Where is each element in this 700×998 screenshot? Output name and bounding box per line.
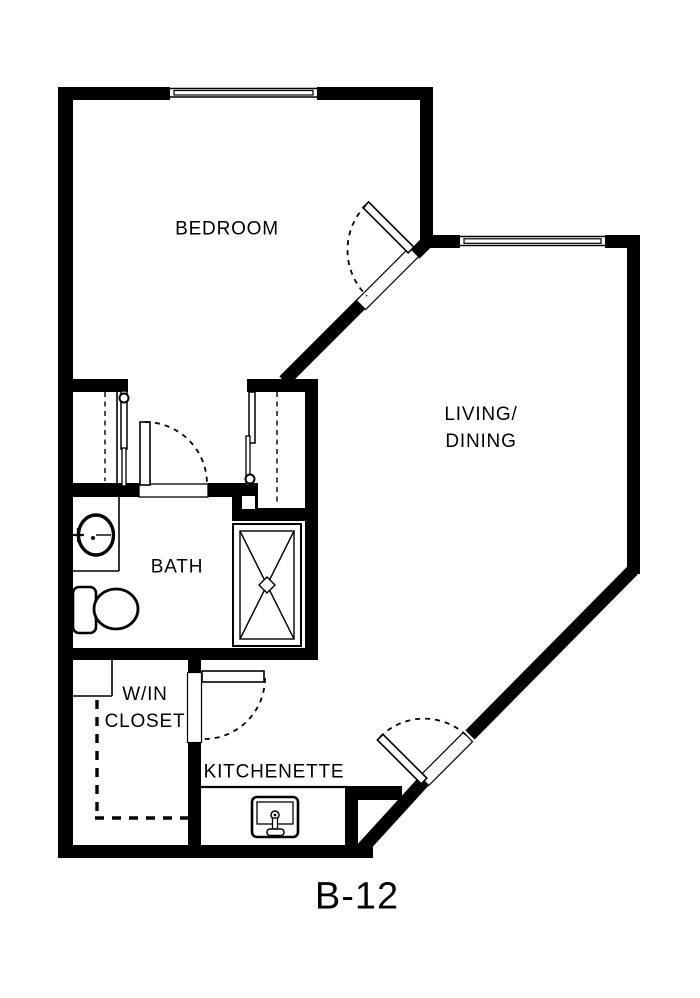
kitchen-sink-icon — [252, 797, 298, 837]
wall — [627, 235, 640, 574]
left-closet — [105, 391, 129, 486]
toilet-icon — [73, 587, 138, 633]
door-pull-icon — [120, 394, 129, 403]
shower-icon — [233, 524, 301, 646]
floor-plan: BEDROOM LIVING/ DINING BATH W/IN CLOSET … — [0, 0, 700, 998]
wall — [245, 508, 318, 521]
wall — [58, 379, 128, 392]
wall — [317, 87, 433, 100]
wall — [58, 648, 318, 660]
wall — [345, 788, 358, 845]
bath-label: BATH — [151, 554, 203, 581]
kitchenette-label: KITCHENETTE — [204, 759, 345, 786]
wall — [58, 483, 140, 497]
door-pull-icon — [246, 475, 255, 484]
walk-in-closet-label-line1: W/IN — [105, 681, 186, 708]
wall — [58, 87, 73, 858]
living-dining-label-line1: LIVING/ — [444, 401, 517, 428]
wall — [188, 742, 201, 845]
entry-door — [377, 719, 472, 786]
bathroom-sink-icon — [72, 515, 114, 555]
wall-diagonal — [470, 570, 633, 735]
kitchenette-fittings — [201, 787, 348, 837]
wall — [58, 845, 373, 858]
wall — [58, 87, 170, 100]
living-dining-label: LIVING/ DINING — [444, 401, 517, 455]
living-dining-label-line2: DINING — [444, 428, 517, 455]
wall-junction-detail — [242, 496, 255, 509]
walk-in-closet-label-line2: CLOSET — [105, 708, 186, 735]
walk-in-closet-label: W/IN CLOSET — [105, 681, 186, 735]
bedroom-label: BEDROOM — [175, 216, 279, 243]
bedroom-door — [348, 202, 419, 310]
floor-plan-drawing — [0, 0, 700, 998]
kitchenette-door — [188, 671, 266, 743]
bath-door — [139, 422, 208, 497]
wall — [305, 388, 318, 660]
wall-diagonal — [415, 243, 426, 254]
closet-sliding-door — [122, 448, 126, 486]
unit-label: B-12 — [315, 876, 399, 919]
living-dining-window — [460, 237, 605, 246]
wall-diagonal — [284, 303, 362, 381]
bedroom-window — [170, 89, 317, 98]
wall — [420, 87, 433, 248]
